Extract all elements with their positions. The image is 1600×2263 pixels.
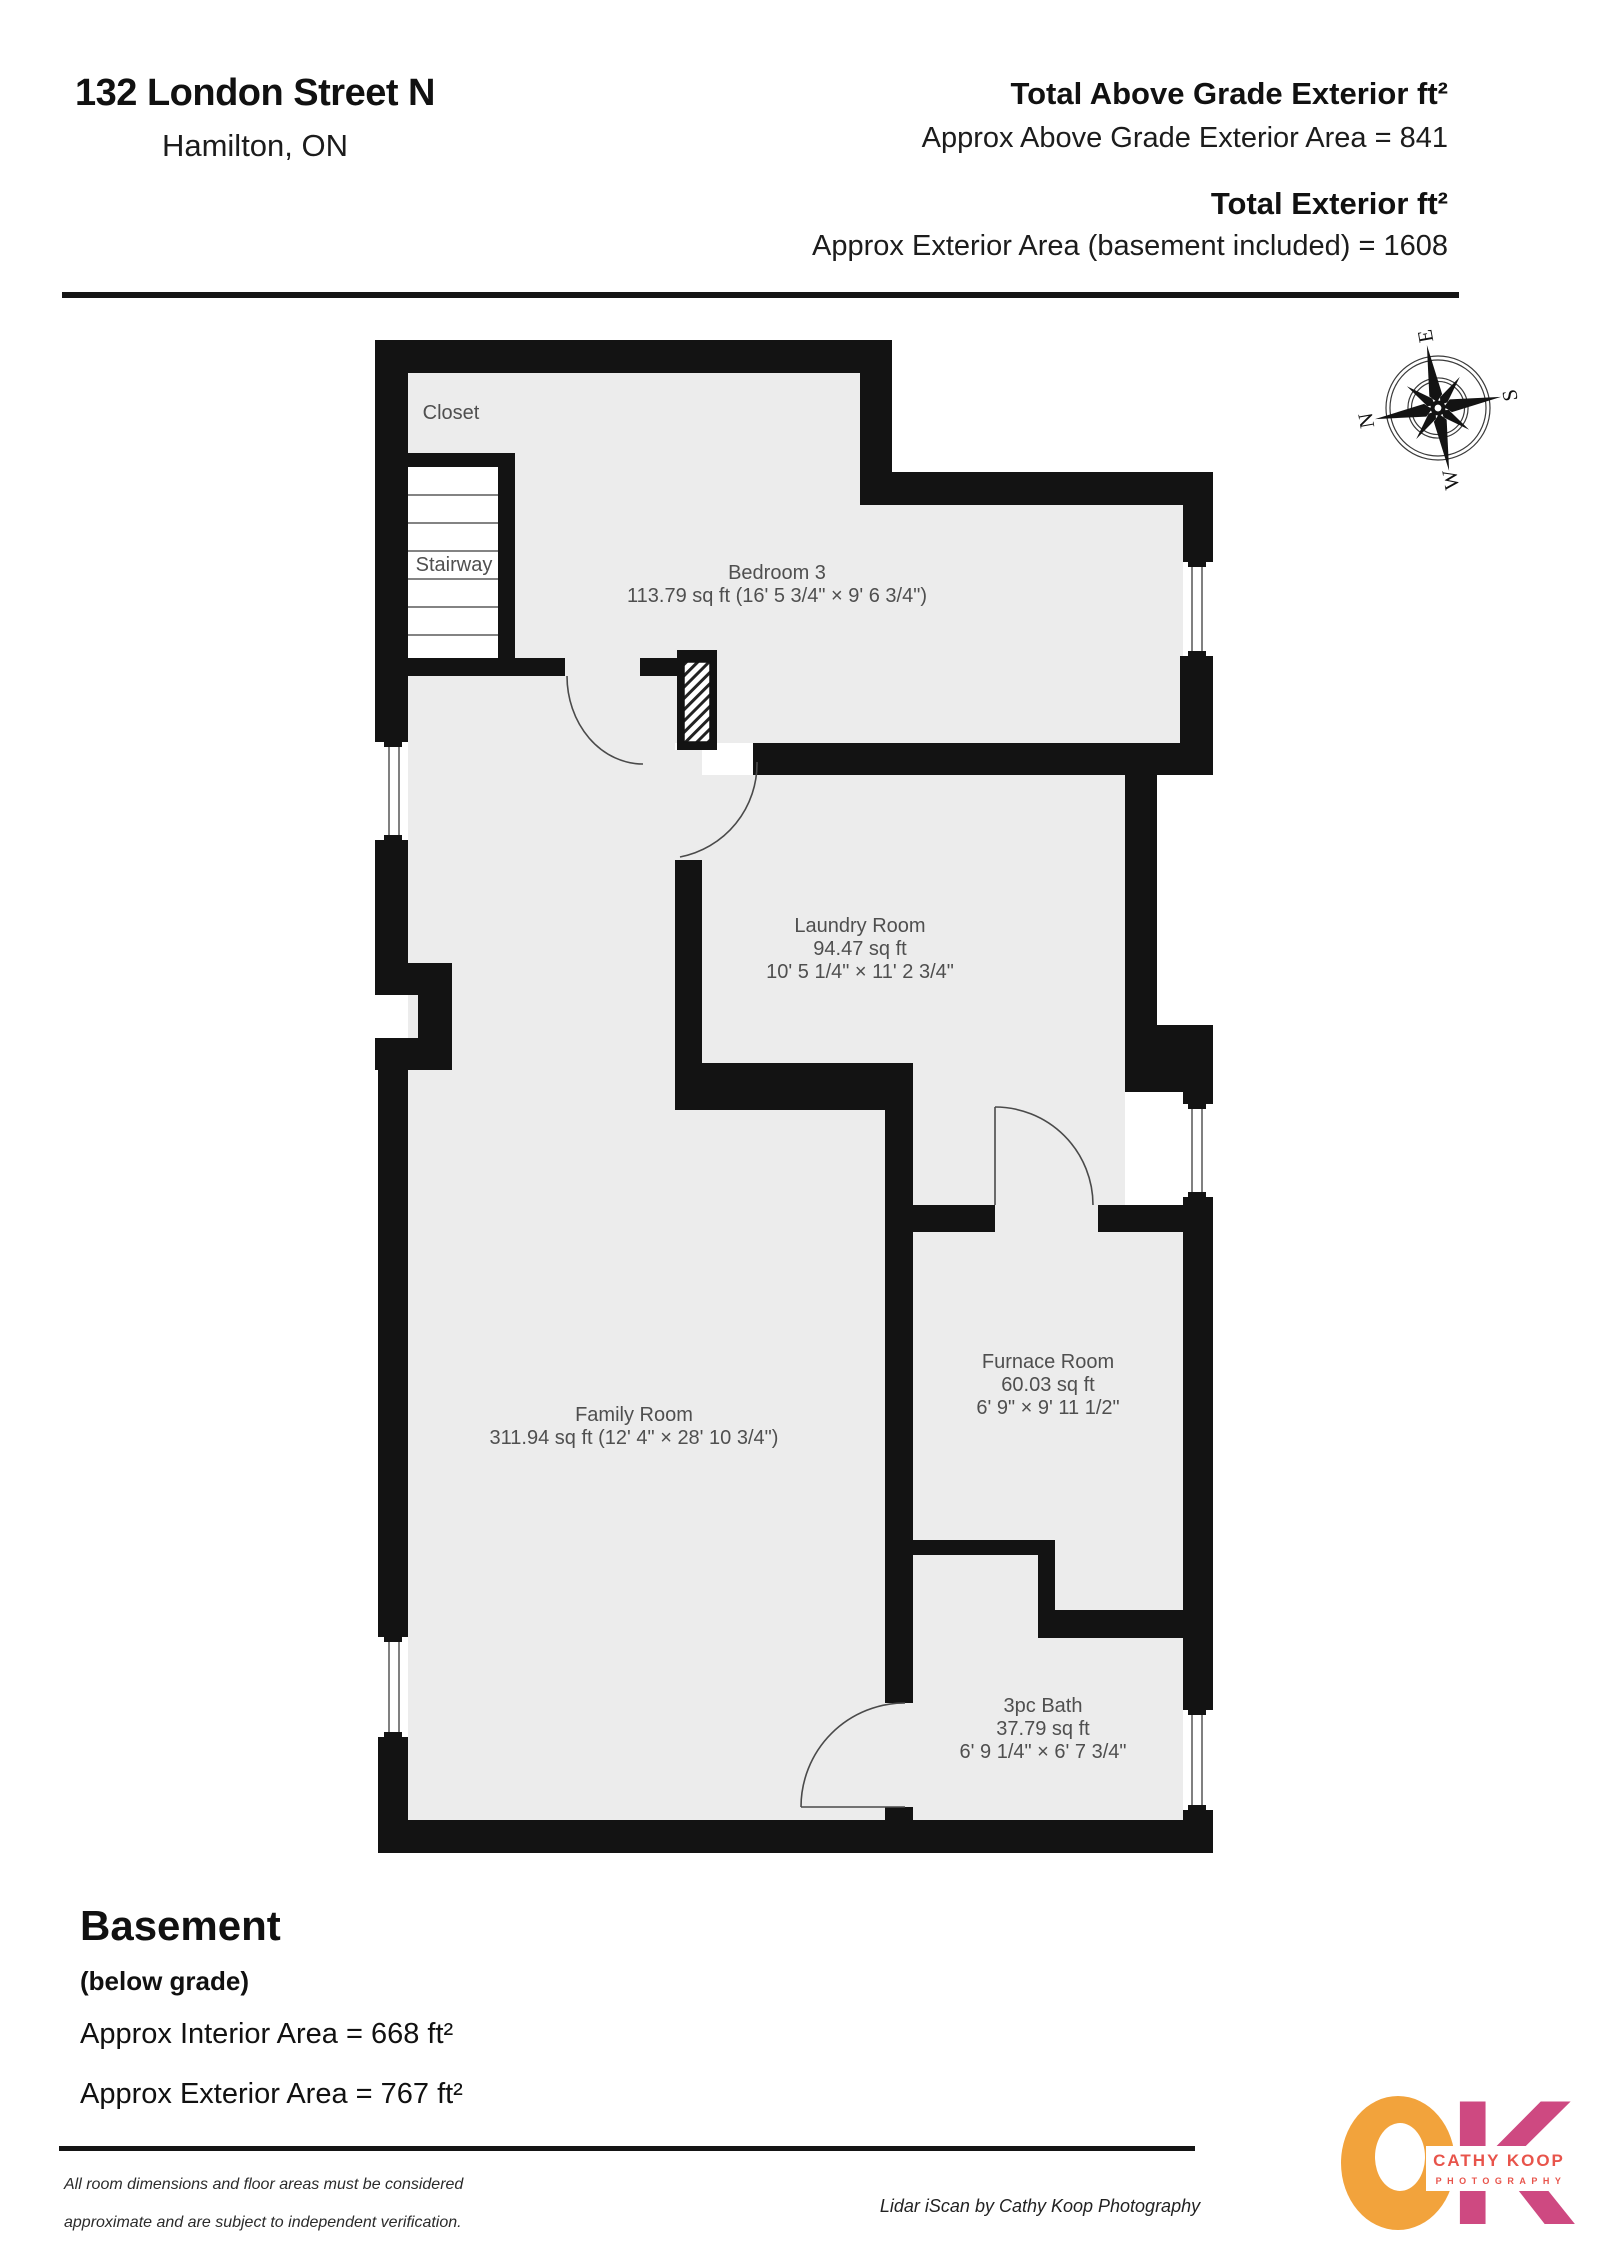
label-stairway: Stairway bbox=[416, 554, 493, 576]
floor-title: Basement bbox=[80, 1902, 281, 1950]
label-furnace-area: 60.03 sq ft bbox=[1001, 1374, 1095, 1396]
compass-icon: N E S W bbox=[1341, 315, 1537, 504]
scan-credit: Lidar iScan by Cathy Koop Photography bbox=[870, 2196, 1210, 2217]
window-bath-east bbox=[1183, 1710, 1213, 1810]
label-family-name: Family Room bbox=[575, 1404, 693, 1426]
photographer-logo: K CATHY KOOP PHOTOGRAPHY bbox=[1341, 2063, 1577, 2262]
footer-divider bbox=[59, 2146, 1195, 2151]
floorplan-page: 132 London Street N Hamilton, ON Total A… bbox=[0, 0, 1600, 2263]
chimney bbox=[677, 650, 717, 750]
compass-n: N bbox=[1353, 411, 1379, 430]
label-laundry-area: 94.47 sq ft bbox=[813, 938, 907, 960]
logo-sub-text: PHOTOGRAPHY bbox=[1436, 2176, 1567, 2186]
disclaimer-line2: approximate and are subject to independe… bbox=[64, 2214, 462, 2231]
label-closet: Closet bbox=[423, 402, 480, 424]
label-family-dims: 311.94 sq ft (12' 4" × 28' 10 3/4") bbox=[490, 1427, 779, 1449]
label-bath-dims: 6' 9 1/4" × 6' 7 3/4" bbox=[960, 1741, 1127, 1763]
floor-interior-area: Approx Interior Area = 668 ft² bbox=[80, 2018, 453, 2051]
disclaimer-line1: All room dimensions and floor areas must… bbox=[64, 2176, 463, 2193]
floor-exterior-area: Approx Exterior Area = 767 ft² bbox=[80, 2078, 463, 2111]
label-bath-name: 3pc Bath bbox=[1004, 1695, 1083, 1717]
label-laundry-name: Laundry Room bbox=[794, 915, 925, 937]
logo-name-text: CATHY KOOP bbox=[1433, 2151, 1565, 2170]
label-bath-area: 37.79 sq ft bbox=[996, 1718, 1090, 1740]
label-laundry-dims: 10' 5 1/4" × 11' 2 3/4" bbox=[766, 961, 954, 983]
label-bedroom3-dims: 113.79 sq ft (16' 5 3/4" × 9' 6 3/4") bbox=[627, 585, 927, 607]
label-bedroom3-name: Bedroom 3 bbox=[728, 562, 826, 584]
compass-s: S bbox=[1497, 387, 1523, 403]
window-west-upper bbox=[375, 742, 408, 840]
compass-w: W bbox=[1437, 468, 1464, 492]
label-furnace-name: Furnace Room bbox=[982, 1351, 1114, 1373]
window-furnace-east bbox=[1183, 1104, 1213, 1197]
compass-e: E bbox=[1412, 328, 1438, 345]
label-furnace-dims: 6' 9" × 9' 11 1/2" bbox=[976, 1397, 1119, 1419]
floor-grade: (below grade) bbox=[80, 1966, 249, 1997]
disclaimer: All room dimensions and floor areas must… bbox=[64, 2166, 484, 2242]
window-west-lower bbox=[375, 1637, 408, 1737]
window-bedroom-east bbox=[1183, 562, 1213, 656]
